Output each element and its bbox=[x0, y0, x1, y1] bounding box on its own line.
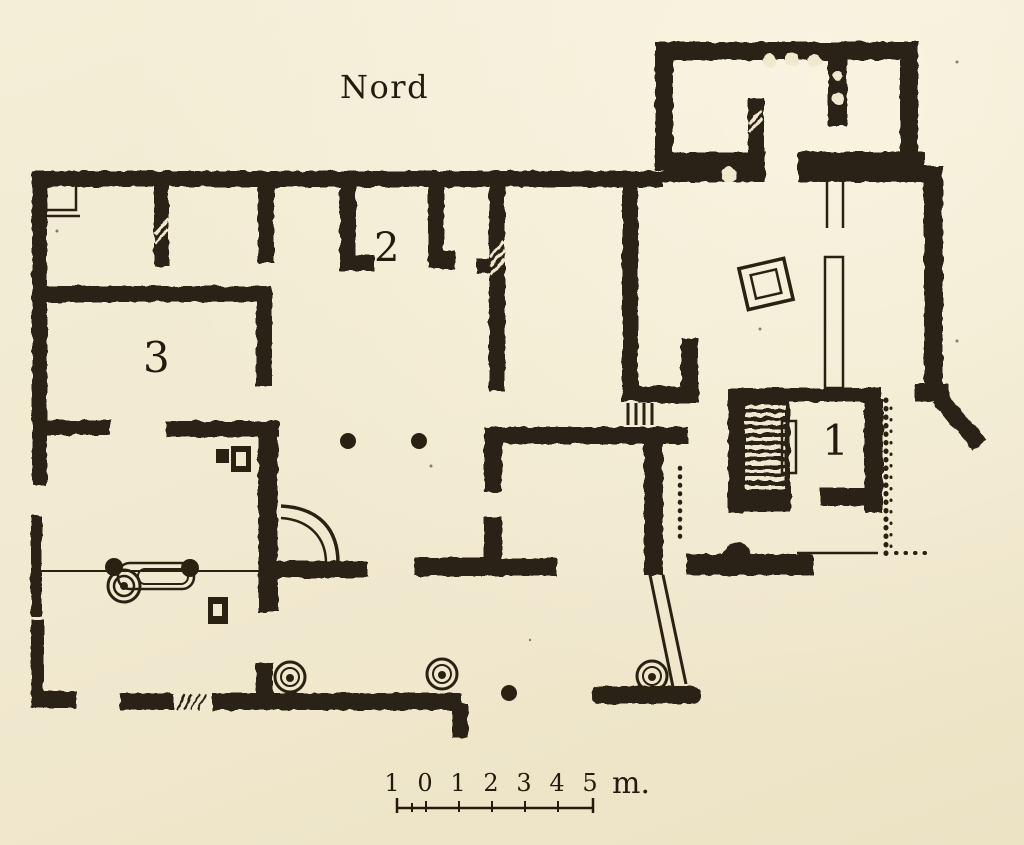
counter-base-wall bbox=[276, 561, 368, 578]
ramp-line bbox=[650, 575, 673, 687]
column-dot bbox=[181, 559, 199, 577]
scale-mark-5: 4 bbox=[549, 769, 564, 797]
room3-east-wall bbox=[256, 286, 272, 387]
annex-notch bbox=[832, 71, 842, 81]
well-head-center bbox=[120, 582, 128, 590]
wall-left-foot bbox=[31, 691, 76, 708]
room-label-2: 2 bbox=[374, 225, 399, 271]
north-label: Nord bbox=[340, 68, 429, 106]
atrium-west-stub-lower bbox=[484, 517, 502, 575]
plan-page: Nord 1 2 3 1 0 1 2 3 4 5 m. bbox=[0, 0, 1024, 845]
wall-long-west bbox=[489, 185, 505, 391]
column-dot bbox=[340, 433, 356, 449]
wall-mid-vertical bbox=[258, 421, 278, 612]
wall-right-diagonal bbox=[938, 397, 980, 445]
column-base-center bbox=[438, 671, 446, 679]
outlined-wall bbox=[825, 257, 843, 388]
scale-bar: 1 0 1 2 3 4 5 m. bbox=[384, 766, 650, 813]
wall-west-stub bbox=[33, 420, 110, 435]
column-base bbox=[275, 662, 305, 692]
scale-mark-6: 5 bbox=[582, 769, 597, 797]
scale-unit: m. bbox=[612, 766, 650, 801]
pier-square bbox=[216, 449, 229, 463]
column-dot bbox=[411, 433, 427, 449]
column-dot bbox=[501, 685, 517, 701]
column-base-center bbox=[648, 673, 656, 681]
annex-inner-stub-wall bbox=[828, 60, 847, 126]
floor-plan: Nord 1 2 3 1 0 1 2 3 4 5 m. bbox=[0, 0, 1024, 845]
scale-mark-0: 1 bbox=[384, 769, 399, 797]
room1-foot-wall bbox=[728, 485, 791, 512]
entry-wall-bump bbox=[723, 542, 751, 570]
portico-stub bbox=[256, 663, 273, 698]
wall-right-outer bbox=[924, 166, 943, 388]
annex-right-wall bbox=[900, 42, 918, 154]
ramp-line bbox=[663, 575, 686, 684]
entry-wall-vertical bbox=[681, 338, 698, 394]
pier-square-core bbox=[236, 452, 246, 466]
atrium-east-wall bbox=[644, 427, 663, 575]
annex-notch bbox=[763, 54, 777, 68]
scale-bar-ruler bbox=[397, 798, 593, 813]
portico-wall-turn bbox=[452, 704, 468, 738]
room-label-1: 1 bbox=[822, 416, 849, 465]
scale-mark-3: 2 bbox=[483, 769, 498, 797]
annex-notch bbox=[721, 167, 737, 183]
wall-top-main bbox=[33, 171, 663, 187]
room1-inner-stub bbox=[820, 488, 867, 506]
annex-bottom-right-wall bbox=[798, 152, 925, 182]
wall-long-east bbox=[622, 185, 638, 401]
column-base bbox=[427, 659, 457, 689]
counter-arc-outer bbox=[281, 506, 338, 563]
walls bbox=[31, 42, 980, 738]
annex-notch bbox=[785, 52, 799, 66]
column-base-center bbox=[286, 674, 294, 682]
tilted-basin bbox=[739, 258, 793, 309]
wall-left-lower bbox=[31, 620, 44, 700]
tilted-basin-outer bbox=[739, 258, 793, 309]
scale-mark-1: 0 bbox=[417, 769, 432, 797]
wall-stub bbox=[258, 185, 274, 263]
scale-mark-2: 1 bbox=[450, 769, 465, 797]
wall-stub bbox=[340, 185, 356, 263]
annex-left-wall bbox=[655, 42, 673, 170]
room3-north-wall bbox=[40, 286, 272, 302]
wall-stub bbox=[428, 185, 444, 257]
counter-arc-inner bbox=[281, 518, 326, 563]
scale-mark-4: 3 bbox=[516, 769, 531, 797]
pier-square-core bbox=[213, 604, 222, 616]
entry-steps bbox=[628, 403, 652, 425]
annex-notch bbox=[832, 93, 844, 105]
tilted-basin-inner bbox=[751, 269, 782, 298]
room-label-3: 3 bbox=[143, 333, 170, 382]
portico-wall-west bbox=[120, 693, 461, 710]
wall-tab bbox=[477, 259, 489, 273]
wall-left-upper bbox=[32, 171, 47, 486]
annex-notch bbox=[807, 54, 821, 68]
well-head bbox=[108, 570, 140, 602]
wall-stub-foot bbox=[340, 255, 374, 271]
wall-left-mid bbox=[31, 516, 42, 617]
corner-channel bbox=[46, 184, 76, 210]
wall-stub-foot bbox=[428, 251, 455, 269]
